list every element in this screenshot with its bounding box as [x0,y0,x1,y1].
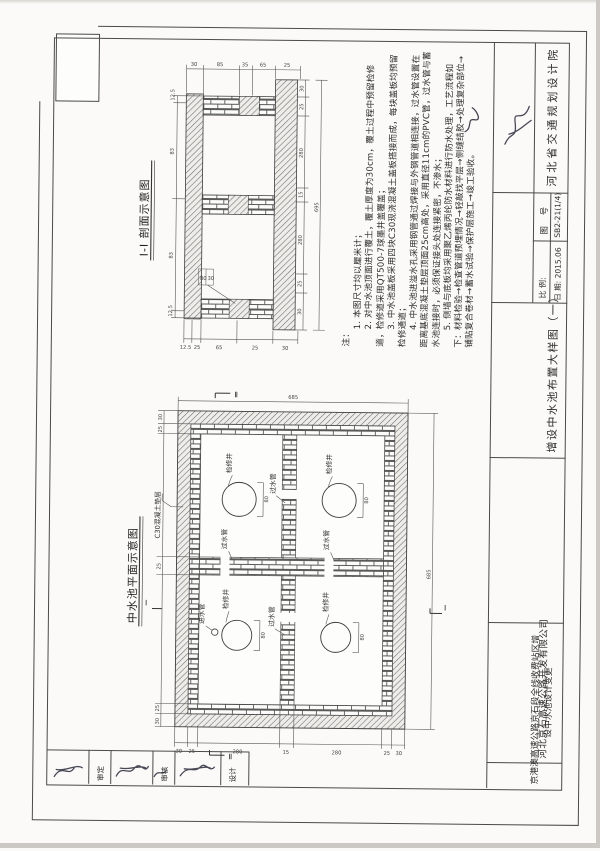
checkmark-notes [465,108,478,132]
signature-overlap [154,770,166,776]
signature-3 [180,765,214,776]
scanned-drawing-sheet: { "titleblock": { "institute": "河北省交通规划设… [0,0,600,848]
paper-sheet: 河北省交通规划设计院 图 号 SB2-21(1/4) 比 例: 日 期: 201… [0,0,600,851]
scan-edge [0,0,600,4]
scan-edge [0,843,600,848]
signature-2 [116,766,148,777]
scan-edge [596,0,600,848]
signature-titleblock [505,106,531,144]
handwriting-overlay [0,0,600,851]
signature-1 [54,766,82,776]
